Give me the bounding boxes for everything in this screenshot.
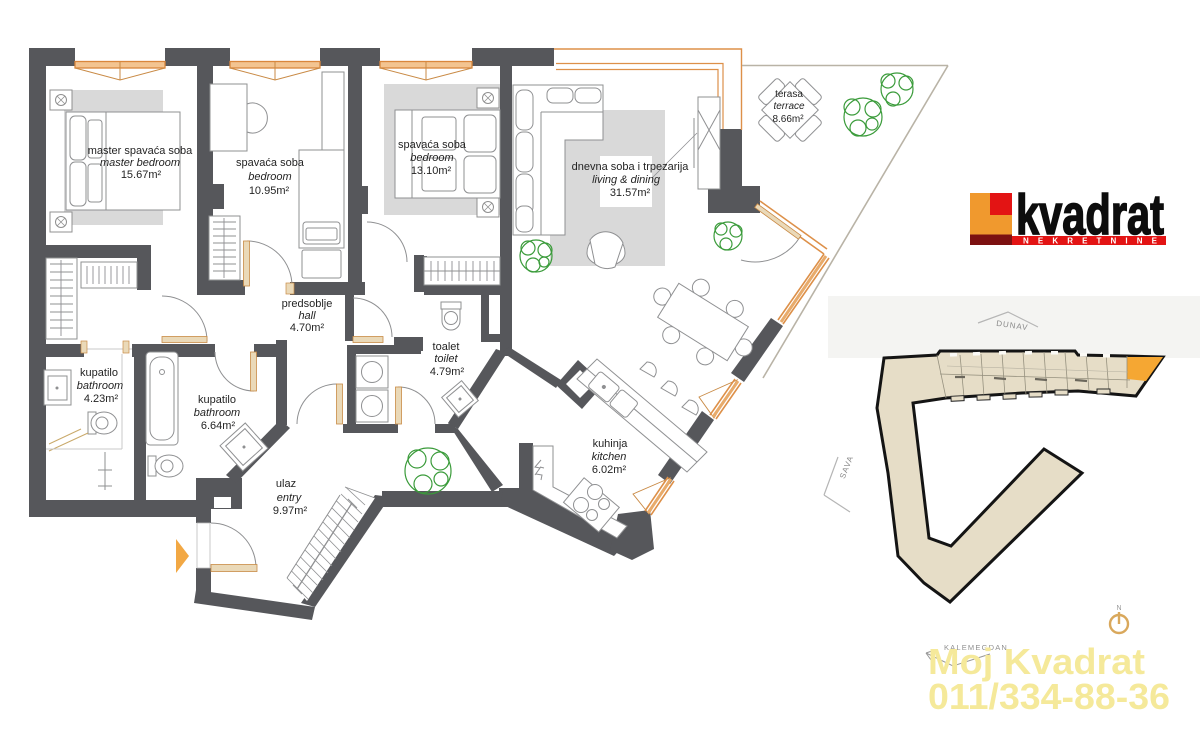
svg-text:011/334-88-36: 011/334-88-36 (928, 676, 1170, 717)
svg-text:terrace: terrace (773, 101, 805, 112)
svg-text:entry: entry (277, 492, 303, 504)
svg-text:10.95m²: 10.95m² (249, 185, 290, 197)
svg-text:SAVA: SAVA (838, 454, 855, 480)
svg-text:spavaća soba: spavaća soba (398, 139, 467, 151)
svg-text:toalet: toalet (433, 341, 460, 353)
svg-text:8.66m²: 8.66m² (772, 114, 804, 125)
svg-text:ulaz: ulaz (276, 478, 296, 490)
svg-text:4.70m²: 4.70m² (290, 322, 325, 334)
svg-text:bathroom: bathroom (77, 380, 123, 392)
svg-text:bedroom: bedroom (410, 152, 453, 164)
svg-text:master spavaća soba: master spavaća soba (88, 145, 193, 157)
svg-text:4.23m²: 4.23m² (84, 393, 119, 405)
svg-text:bathroom: bathroom (194, 407, 240, 419)
svg-text:N: N (1116, 605, 1121, 612)
svg-text:hall: hall (298, 310, 316, 322)
svg-text:kupatilo: kupatilo (198, 394, 236, 406)
svg-text:dnevna soba i trpezarija: dnevna soba i trpezarija (572, 161, 690, 173)
svg-text:master bedroom: master bedroom (100, 157, 180, 169)
svg-text:terasa: terasa (775, 89, 803, 100)
svg-text:4.79m²: 4.79m² (430, 366, 465, 378)
svg-text:kupatilo: kupatilo (80, 367, 118, 379)
svg-text:kvadrat: kvadrat (1016, 183, 1164, 247)
svg-text:toilet: toilet (434, 353, 458, 365)
svg-text:13.10m²: 13.10m² (411, 165, 452, 177)
svg-text:predsoblje: predsoblje (282, 298, 333, 310)
svg-text:kuhinja: kuhinja (593, 438, 629, 450)
svg-text:15.67m²: 15.67m² (121, 169, 162, 181)
svg-text:spavaća soba: spavaća soba (236, 157, 305, 169)
svg-text:bedroom: bedroom (248, 171, 291, 183)
svg-text:6.02m²: 6.02m² (592, 464, 627, 476)
svg-text:9.97m²: 9.97m² (273, 505, 308, 517)
svg-text:kitchen: kitchen (592, 451, 627, 463)
svg-text:living & dining: living & dining (592, 174, 661, 186)
svg-text:6.64m²: 6.64m² (201, 420, 236, 432)
svg-text:31.57m²: 31.57m² (610, 187, 651, 199)
